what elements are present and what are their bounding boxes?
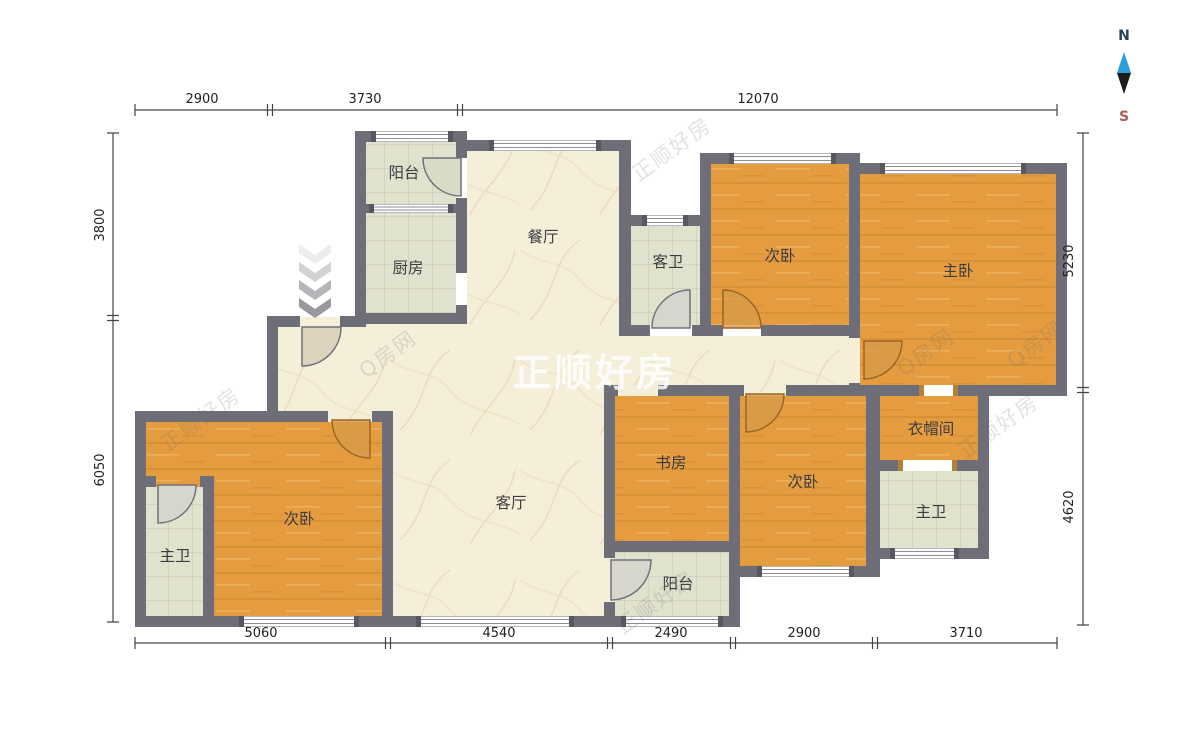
entry-arrow-chevrons (299, 244, 331, 318)
room-label-bedroom-left: 次卧 (283, 510, 314, 528)
dim-bottom-4: 3710 (949, 626, 982, 641)
dim-line-top (135, 104, 1057, 116)
compass: N S (1117, 28, 1131, 125)
floor-plan-page: 阳台 厨房 餐厅 客卫 次卧 主卧 书房 次卧 衣帽间 主卫 次卧 主卫 客厅 … (0, 0, 1198, 754)
cloakroom-opening (919, 385, 958, 396)
window (890, 548, 959, 559)
dim-line-left (107, 133, 119, 622)
dim-bottom-1: 4540 (482, 626, 515, 641)
window (642, 215, 688, 226)
window (729, 153, 836, 164)
room-label-master-bedroom: 主卧 (942, 262, 973, 280)
dim-line-right (1077, 133, 1089, 625)
compass-needle-south (1117, 73, 1131, 94)
dim-right-0: 5230 (1062, 244, 1077, 277)
window (371, 131, 453, 142)
dim-top-1: 3730 (348, 92, 381, 107)
room-label-guest-bath: 客卫 (652, 253, 683, 271)
dim-left-0: 3800 (93, 208, 108, 241)
dim-top-2: 12070 (737, 92, 778, 107)
window (880, 163, 1026, 174)
compass-needle-north (1117, 52, 1131, 73)
dim-bottom-0: 5060 (244, 626, 277, 641)
dim-right-1: 4620 (1062, 490, 1077, 523)
master-bath-right-opening (898, 460, 957, 471)
room-label-living: 客厅 (495, 494, 526, 512)
room-label-cloakroom: 衣帽间 (908, 420, 955, 438)
watermark-center: 正顺好房 (513, 351, 677, 395)
window (757, 566, 854, 577)
dim-bottom-3: 2900 (787, 626, 820, 641)
dim-bottom-2: 2490 (654, 626, 687, 641)
dim-top-0: 2900 (185, 92, 218, 107)
room-label-master-bath-left: 主卫 (159, 547, 190, 565)
dim-left-1: 6050 (93, 453, 108, 486)
room-label-dining: 餐厅 (527, 228, 558, 246)
room-label-balcony-top: 阳台 (388, 164, 419, 182)
room-label-kitchen: 厨房 (392, 259, 423, 277)
compass-south-label: S (1119, 109, 1129, 125)
room-label-study: 书房 (655, 454, 686, 472)
room-label-bedroom-top: 次卧 (764, 247, 795, 265)
window (489, 140, 601, 151)
window (369, 204, 453, 213)
room-label-bedroom-bottom: 次卧 (787, 473, 818, 491)
compass-north-label: N (1118, 28, 1130, 44)
floor-plan-canvas: 阳台 厨房 餐厅 客卫 次卧 主卧 书房 次卧 衣帽间 主卫 次卧 主卫 客厅 … (0, 0, 1198, 754)
room-label-master-bath-right: 主卫 (915, 503, 946, 521)
